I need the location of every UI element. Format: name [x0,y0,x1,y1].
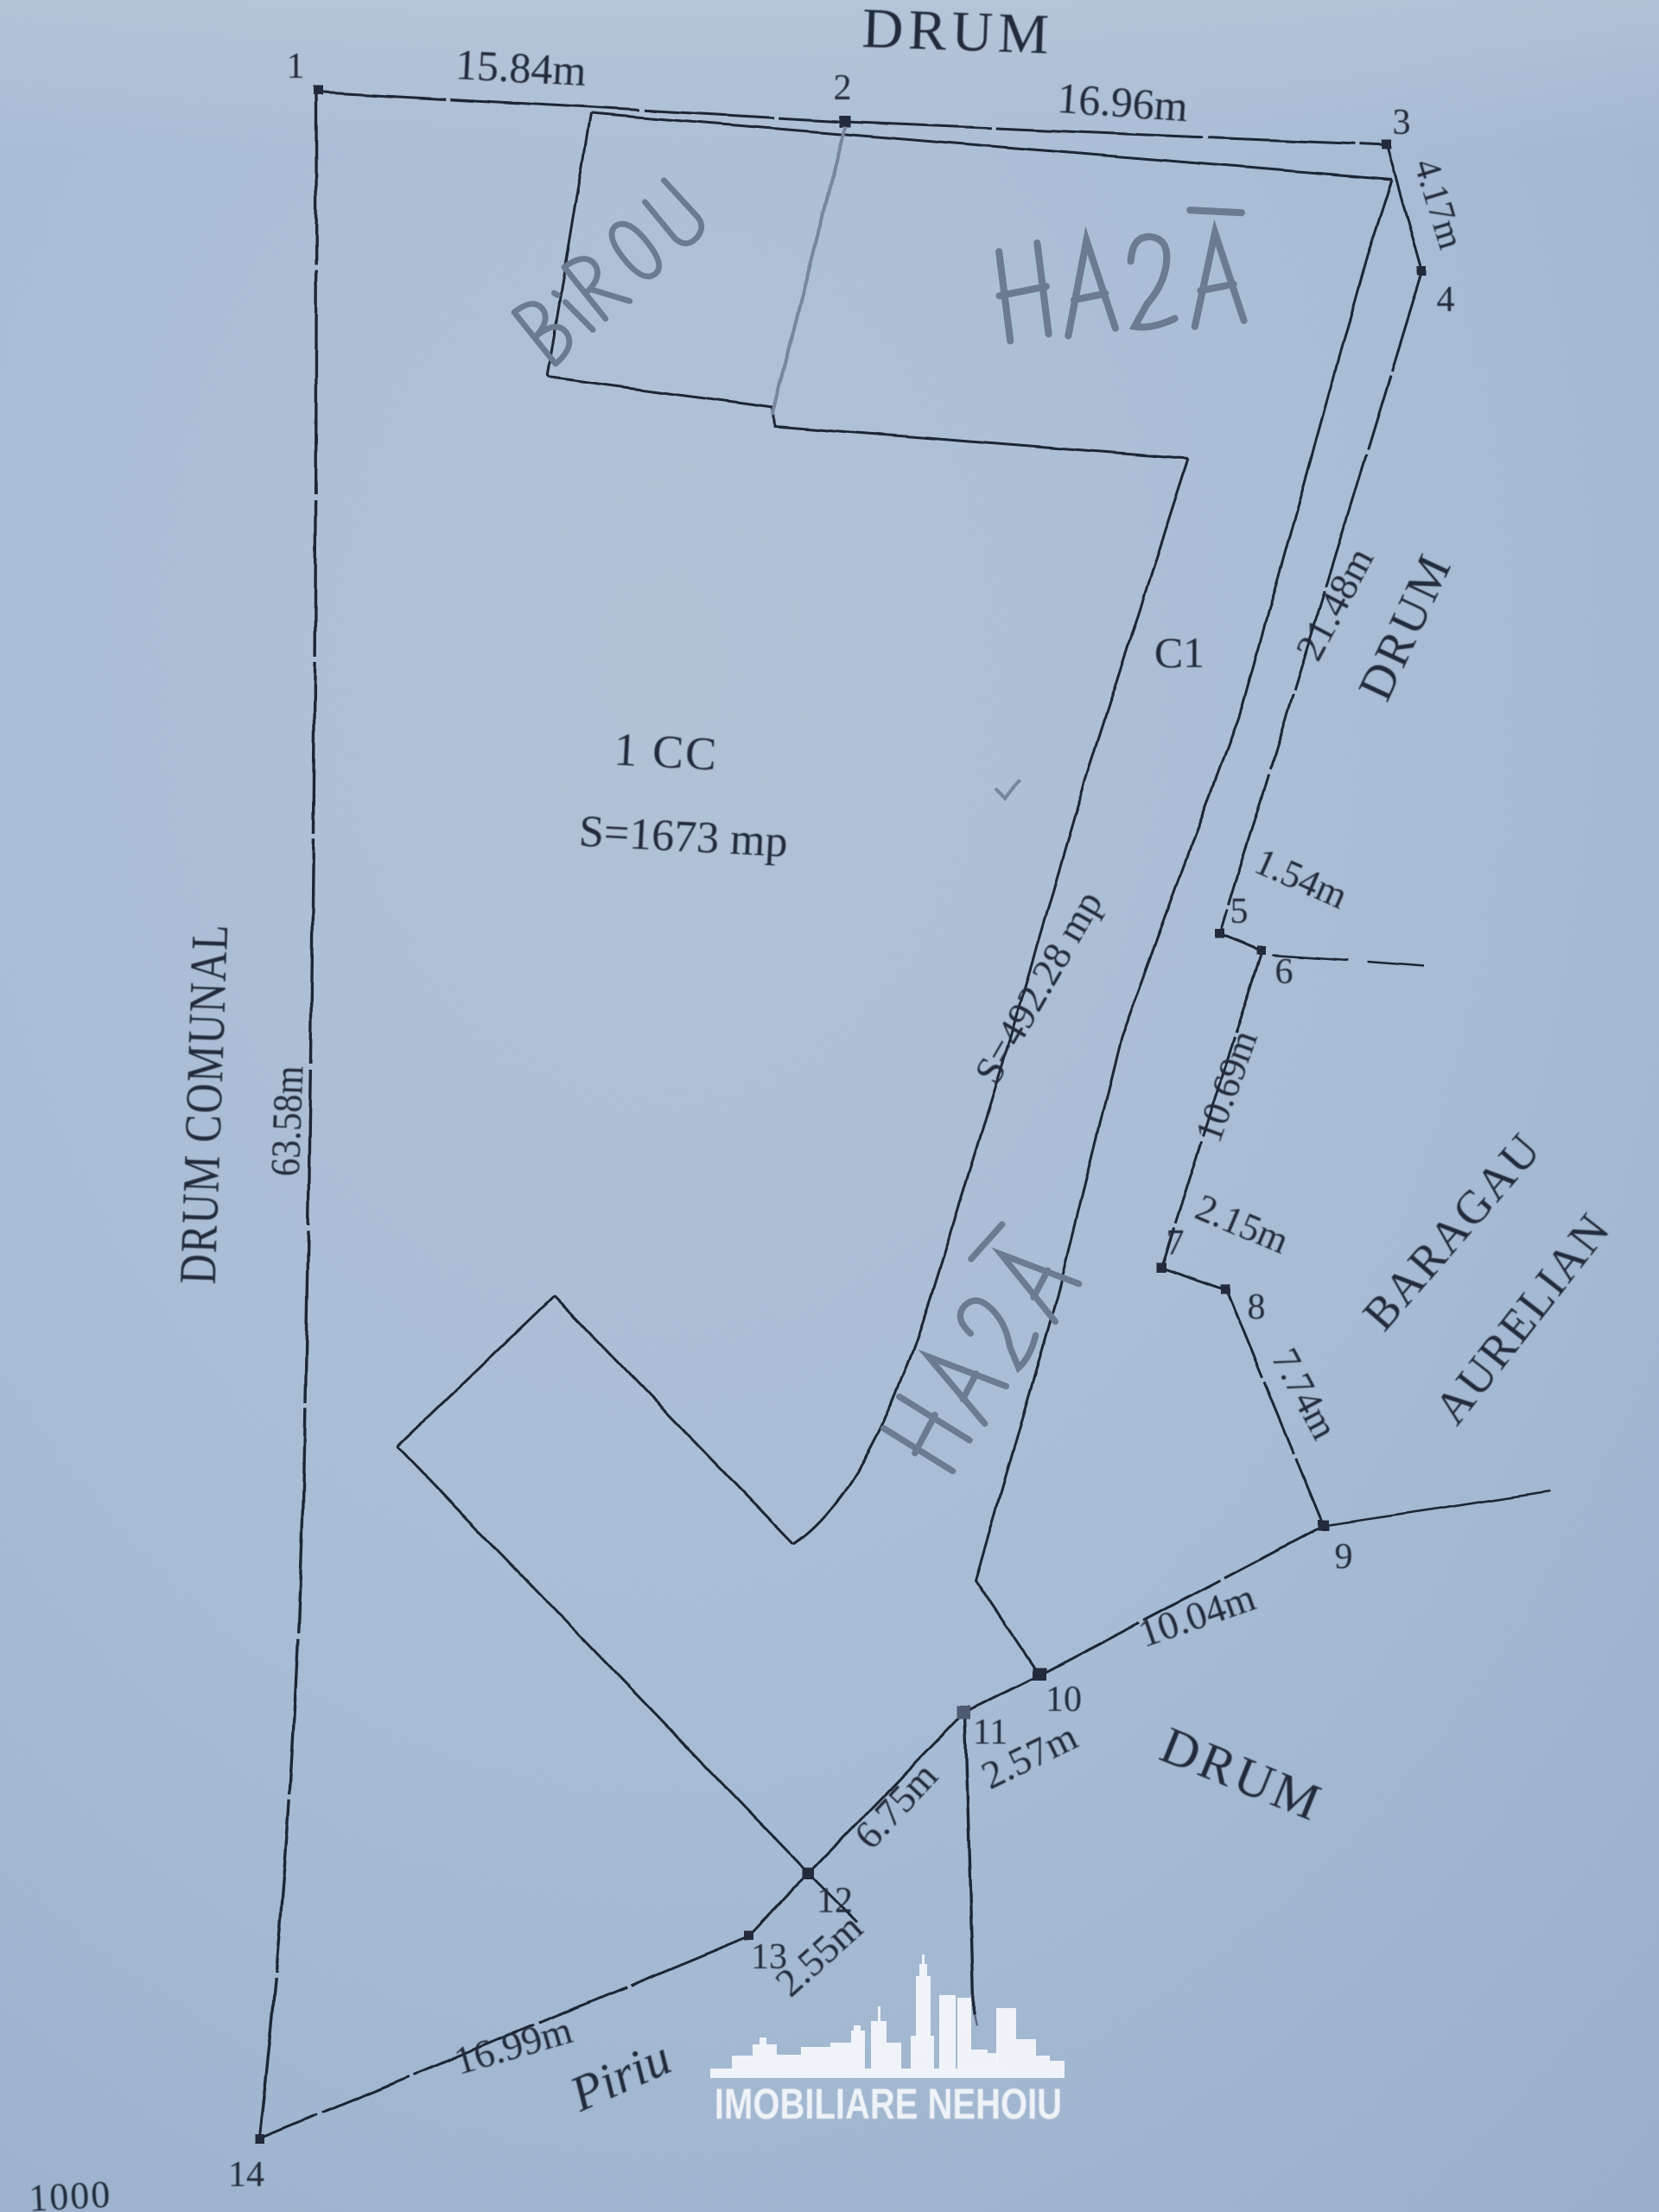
svg-text:9: 9 [1335,1537,1353,1577]
svg-text:C1: C1 [1154,628,1205,677]
svg-text:5: 5 [1230,892,1249,931]
svg-text:12: 12 [817,1881,853,1921]
svg-text:6: 6 [1275,952,1294,992]
svg-text:10: 10 [1046,1680,1082,1719]
svg-text:15.84m: 15.84m [454,40,588,95]
svg-text:1000: 1000 [28,2173,112,2212]
svg-text:7: 7 [1166,1224,1185,1263]
svg-text:11: 11 [973,1713,1007,1752]
svg-text:8: 8 [1248,1287,1266,1327]
svg-text:IMOBILIARE NEHOIU: IMOBILIARE NEHOIU [715,2080,1062,2128]
svg-text:3: 3 [1393,103,1411,143]
svg-text:63.58m: 63.58m [262,1065,312,1178]
svg-text:16.96m: 16.96m [1056,73,1190,130]
svg-text:4: 4 [1437,280,1455,320]
svg-text:13: 13 [751,1937,787,1977]
svg-text:2: 2 [834,68,852,108]
svg-text:1: 1 [287,47,305,86]
svg-text:1 CC: 1 CC [613,723,720,780]
svg-text:DRUM: DRUM [861,0,1055,67]
svg-text:14: 14 [228,2155,264,2195]
